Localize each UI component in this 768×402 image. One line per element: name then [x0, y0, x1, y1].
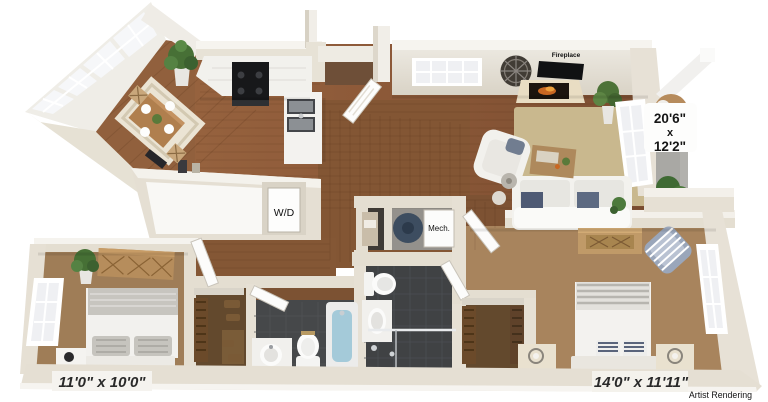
svg-text:x: x: [667, 127, 674, 139]
svg-text:14'0" x 11'11": 14'0" x 11'11": [594, 374, 689, 391]
svg-text:W/D: W/D: [274, 207, 295, 219]
svg-text:Artist Rendering: Artist Rendering: [689, 390, 752, 400]
svg-text:12'2": 12'2": [654, 139, 686, 154]
svg-text:11'0" x 10'0": 11'0" x 10'0": [59, 374, 147, 391]
svg-text:Mech.: Mech.: [428, 224, 450, 233]
svg-text:Fireplace: Fireplace: [552, 52, 581, 59]
svg-text:20'6": 20'6": [654, 111, 686, 126]
